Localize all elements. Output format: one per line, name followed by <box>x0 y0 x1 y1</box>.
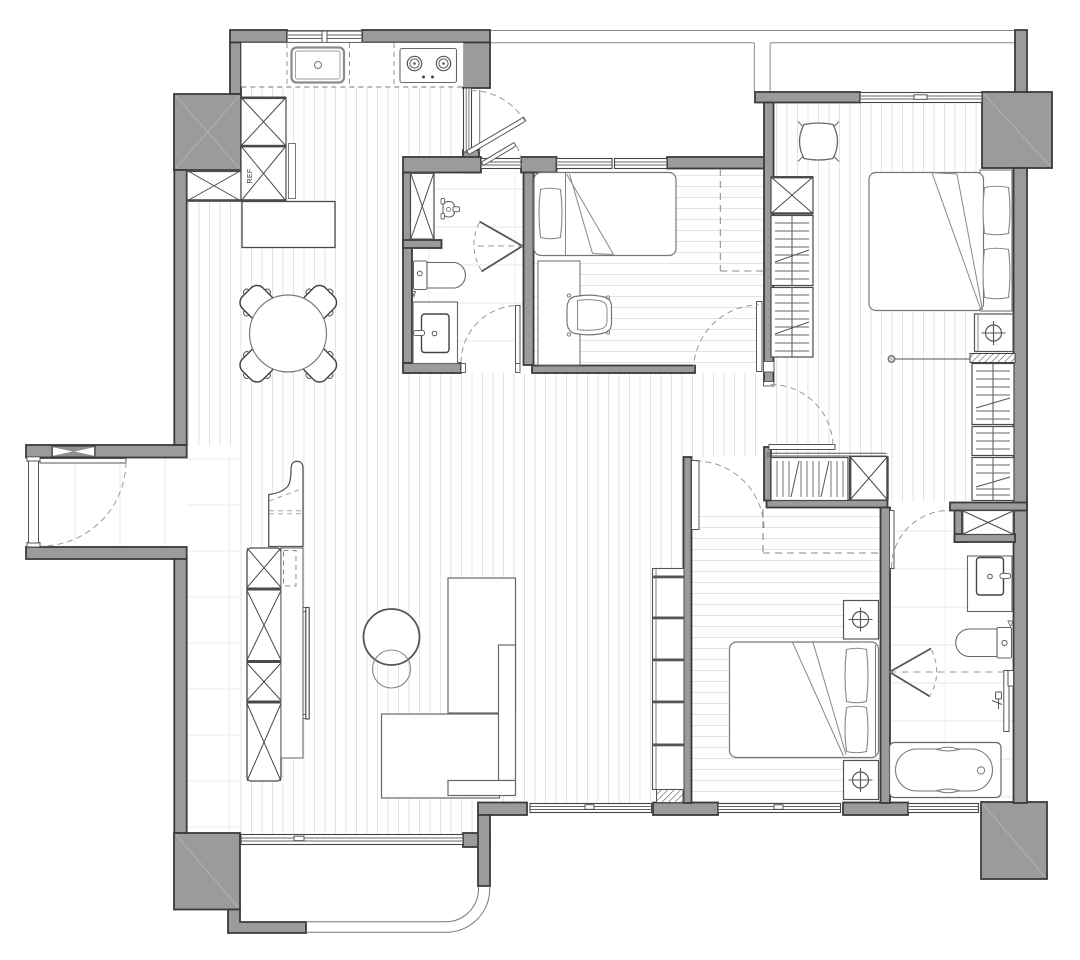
svg-text:REF: REF <box>247 169 254 184</box>
